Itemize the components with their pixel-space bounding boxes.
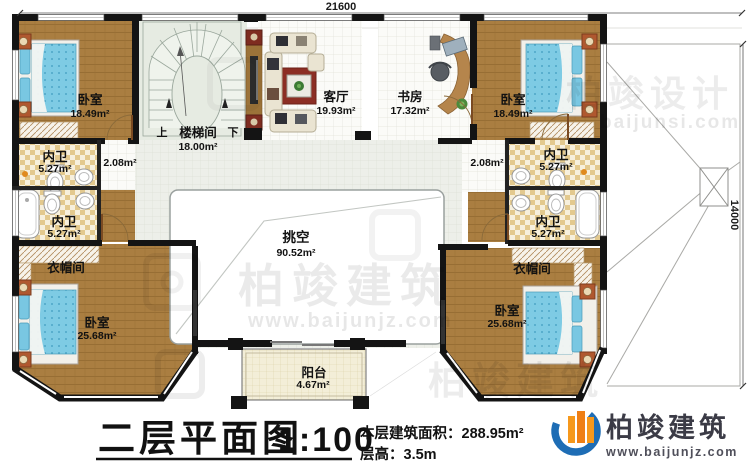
bath-br-area: 5.27m² (531, 228, 565, 240)
bedroom-tl-label: 卧室 (77, 92, 103, 107)
living-area: 19.93m² (316, 105, 356, 117)
computer-tower-icon (430, 36, 440, 50)
stairwell-label: 楼梯间 (179, 125, 217, 140)
floor-height-text: 层高：3.5m (360, 445, 437, 463)
bed-bottom-left (16, 280, 78, 367)
void-label: 挑空 (283, 229, 310, 245)
plan-title: 二层平面图 (98, 418, 303, 459)
watermark-build-name-2: 柏竣建筑 (428, 361, 604, 403)
balcony-label: 阳台 (301, 365, 326, 380)
cloak-left-label: 衣帽间 (47, 260, 85, 275)
floor-plan-svg: 卧室 18.49m² 上 楼梯间 下 18.00m² 客厅 19.93m² 书房… (0, 0, 750, 466)
bed-bottom-right (523, 284, 597, 367)
watermark-build-url: www.baijunjz.com (247, 310, 453, 332)
bedroom-bl-area: 25.68m² (77, 330, 117, 342)
hall-right-area: 2.08m² (470, 157, 504, 169)
balcony-area: 4.67m² (296, 379, 330, 391)
watermark-build-name: 柏竣建筑 (238, 260, 454, 312)
dimension-right: 14000 (728, 200, 740, 231)
bath-tl-area: 5.27m² (38, 163, 72, 175)
hall-left-area: 2.08m² (103, 157, 137, 169)
bedroom-tl-area: 18.49m² (70, 108, 110, 120)
watermark-design-url: baijunsi.com (600, 112, 740, 133)
bath-bl-area: 5.27m² (47, 228, 81, 240)
floor-plan-page: 卧室 18.49m² 上 楼梯间 下 18.00m² 客厅 19.93m² 书房… (0, 0, 750, 466)
stair-down-label: 下 (228, 126, 239, 139)
study-label: 书房 (397, 89, 422, 104)
study-area: 17.32m² (390, 105, 430, 117)
bath-br-label: 内卫 (535, 214, 561, 229)
bedroom-tr-label: 卧室 (500, 92, 526, 107)
floor-area-text: 本层建筑面积：288.95m² (360, 424, 524, 442)
logo-company-name: 柏竣建筑 (606, 412, 730, 443)
bath-tr-area: 5.27m² (539, 161, 573, 173)
bath-tl-label: 内卫 (42, 149, 68, 164)
bed-top-left (16, 34, 79, 117)
bath-tr-label: 内卫 (543, 147, 569, 162)
living-label: 客厅 (322, 89, 349, 104)
bedroom-br-area: 25.68m² (487, 318, 527, 330)
bath-bl-label: 内卫 (51, 214, 77, 229)
void-area-label: 90.52m² (276, 247, 316, 259)
bedroom-tr-area: 18.49m² (493, 108, 533, 120)
stair-up-label: 上 (157, 125, 168, 139)
stairwell-area: 18.00m² (178, 141, 218, 153)
hallway-right-wood (468, 192, 507, 242)
cloak-right-label: 衣帽间 (513, 261, 551, 276)
sofa-set (265, 33, 324, 132)
bedroom-br-label: 卧室 (494, 303, 520, 318)
logo-company-url: www.baijunjz.com (605, 445, 738, 459)
hallway-left-wood (99, 190, 135, 242)
dimension-top: 21600 (326, 1, 357, 13)
bedroom-bl-label: 卧室 (84, 315, 110, 330)
desk-chair (431, 63, 449, 81)
watermark-design-name: 柏竣设计 (566, 73, 734, 114)
